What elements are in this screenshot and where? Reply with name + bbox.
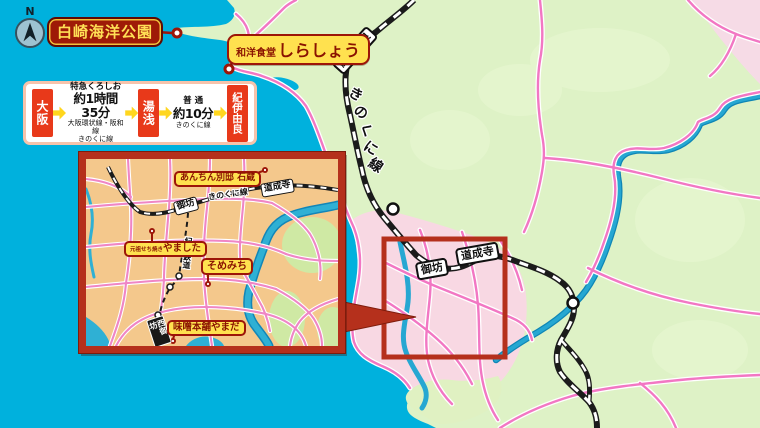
route-leg2-lines1: きのくに線 <box>172 121 214 129</box>
inset-map: あんちん別邸 石蔵 御坊 きのくに線 道成寺 紀州鉄道 元祖せち焼きやました そ… <box>79 152 345 353</box>
route-leg1-lines2: きのくに線 <box>66 135 125 143</box>
restaurant-label-name: しらしょう <box>278 37 361 61</box>
compass-dial <box>15 18 45 48</box>
restaurant-label-prefix: 和洋食堂 <box>236 44 276 59</box>
route-arrow-icon <box>159 107 172 120</box>
poi-label-anchin: あんちん別邸 石蔵 <box>174 171 261 187</box>
station-dot <box>388 204 399 215</box>
compass: N <box>11 6 49 54</box>
map-canvas: N 白崎海洋公園 和洋食堂 しらしょう 大阪 特急くろしお 約1時間35分 大阪… <box>0 0 760 428</box>
park-label: 白崎海洋公園 <box>47 17 163 47</box>
station-dot <box>568 298 579 309</box>
route-arrow-icon <box>125 107 138 120</box>
route-station-kiiyura: 紀伊由良 <box>227 85 248 142</box>
restaurant-label: 和洋食堂 しらしょう <box>227 34 370 65</box>
poi-label-miso: 味噌本舗やまだ <box>167 320 246 336</box>
route-leg1-time: 約1時間35分 <box>66 92 125 120</box>
poi-yamashita-prefix: 元祖せち焼き <box>130 247 163 253</box>
route-leg2-time: 約10分 <box>172 107 214 121</box>
route-arrow-icon <box>214 107 227 120</box>
route-arrow-icon <box>53 107 66 120</box>
route-info-panel: 大阪 特急くろしお 約1時間35分 大阪環状線・阪和線 きのくに線 湯浅 普 通… <box>23 81 257 145</box>
route-station-yuasa: 湯浅 <box>138 89 159 137</box>
route-leg-2: 普 通 約10分 きのくに線 <box>172 97 214 128</box>
route-leg-1: 特急くろしお 約1時間35分 大阪環状線・阪和線 きのくに線 <box>66 83 125 144</box>
route-leg1-lines1: 大阪環状線・阪和線 <box>66 119 125 135</box>
route-station-osaka: 大阪 <box>32 89 53 137</box>
poi-yamashita-name: やました <box>163 243 201 254</box>
compass-needle-icon <box>17 19 43 47</box>
poi-label-somemichi: そめみち <box>201 258 253 275</box>
compass-north-label: N <box>11 6 49 18</box>
poi-label-yamashita: 元祖せち焼きやました <box>124 241 207 257</box>
